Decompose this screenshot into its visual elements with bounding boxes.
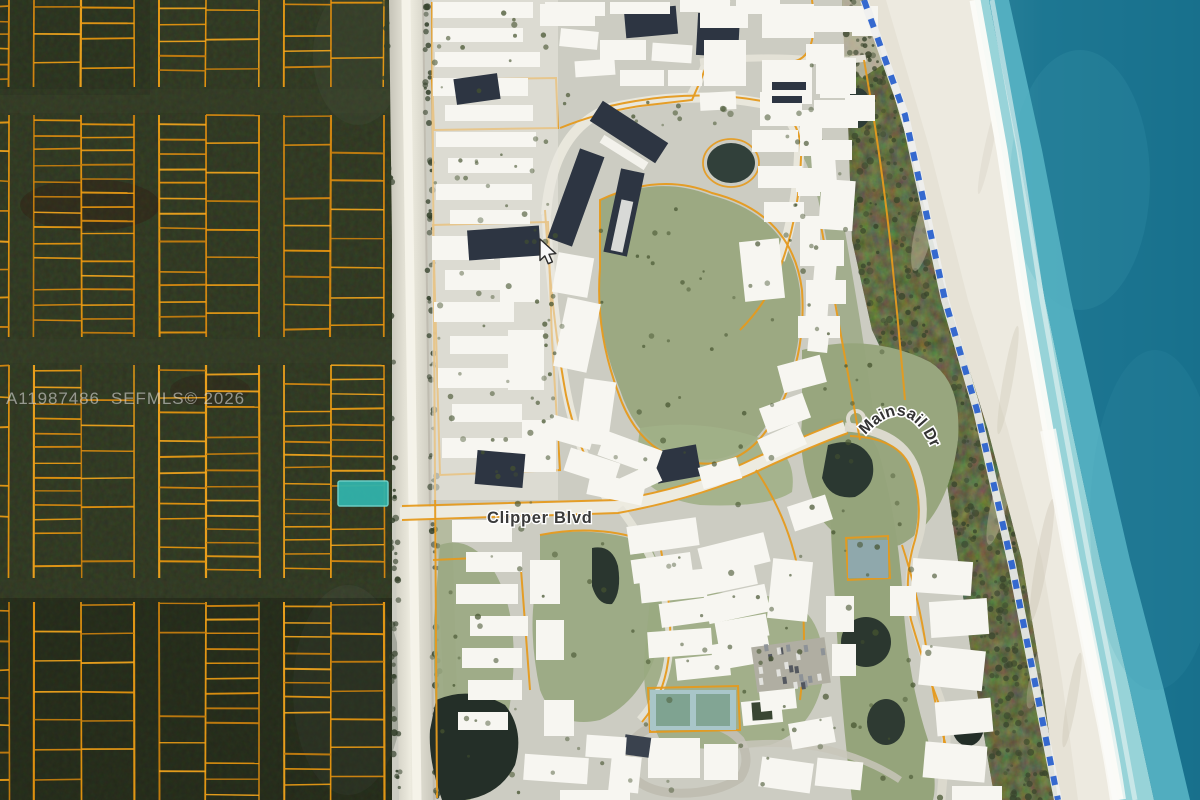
- svg-text:Clipper Blvd: Clipper Blvd: [487, 509, 593, 527]
- svg-text:A11987486 SEFMLS© 2026: A11987486 SEFMLS© 2026: [6, 389, 245, 408]
